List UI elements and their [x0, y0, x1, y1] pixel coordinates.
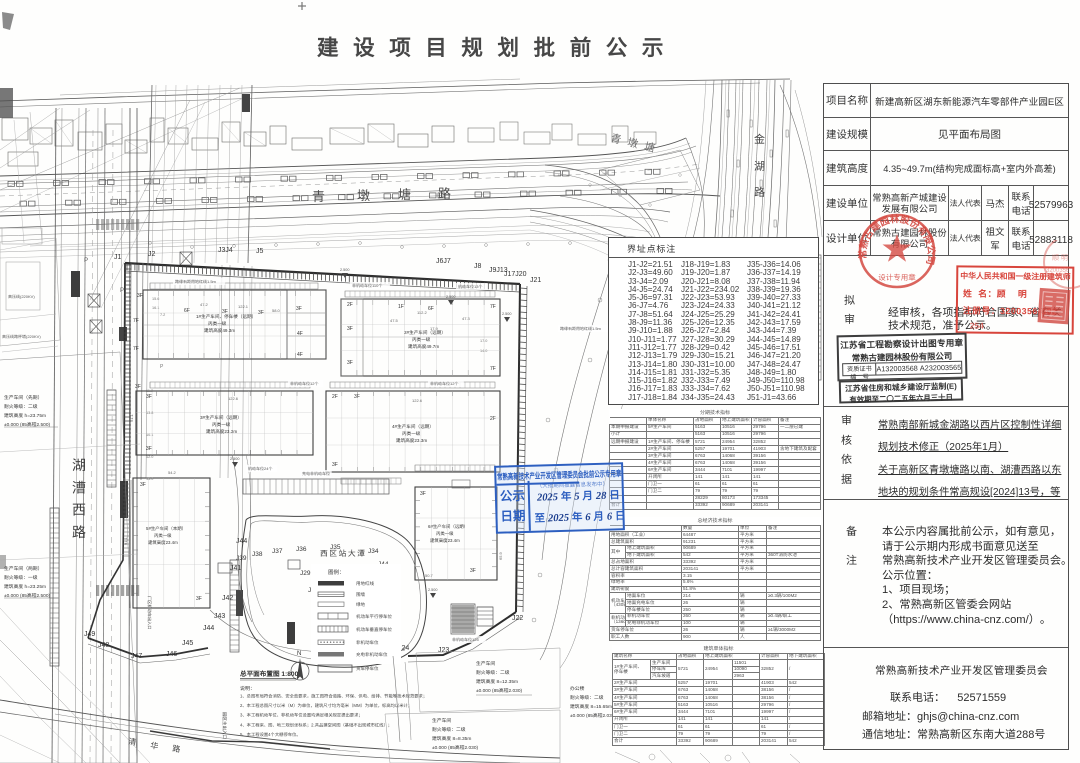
- svg-text:J43: J43: [214, 611, 225, 621]
- svg-text:17.0: 17.0: [480, 339, 487, 344]
- svg-text:3F: 3F: [140, 481, 146, 488]
- svg-text:非机动车位125: 非机动车位125: [452, 637, 479, 643]
- svg-text:J29: J29: [300, 567, 311, 577]
- svg-text:建筑高度 8=8.35m: 建筑高度 8=8.35m: [432, 735, 471, 742]
- svg-text:顺 明: 顺 明: [1052, 253, 1068, 263]
- svg-text:说明：: 说明：: [240, 685, 255, 692]
- svg-text:6#生产车间（远期）: 6#生产车间（远期）: [428, 524, 468, 530]
- svg-text:路缘石距用地红线1.5m: 路缘石距用地红线1.5m: [560, 326, 602, 332]
- svg-text:3F: 3F: [222, 308, 228, 315]
- svg-text:华: 华: [150, 740, 159, 752]
- svg-text:金: 金: [754, 131, 765, 147]
- svg-text:3F: 3F: [332, 461, 338, 468]
- svg-text:园区主出入口: 园区主出入口: [221, 712, 227, 739]
- svg-text:2.500: 2.500: [446, 295, 456, 300]
- svg-text:3F: 3F: [354, 393, 360, 400]
- svg-text:J3J4: J3J4: [218, 245, 233, 255]
- svg-text:建筑高度23.4m: 建筑高度23.4m: [148, 540, 178, 546]
- svg-text:建筑高度 8=12.35m: 建筑高度 8=12.35m: [476, 678, 518, 685]
- svg-text:清: 清: [128, 736, 137, 748]
- svg-text:15.0: 15.0: [146, 477, 153, 482]
- svg-text:建筑高度49.3m: 建筑高度49.3m: [204, 328, 235, 334]
- svg-text:建筑高度 h=23.75m: 建筑高度 h=23.75m: [4, 412, 46, 419]
- svg-text:耐火等级：二级: 耐火等级：二级: [476, 669, 510, 676]
- svg-text:J45: J45: [182, 638, 193, 648]
- svg-text:3F: 3F: [296, 305, 302, 312]
- svg-text:122.6: 122.6: [228, 396, 239, 402]
- svg-text:3F: 3F: [146, 445, 152, 452]
- svg-text:91.1: 91.1: [129, 413, 135, 422]
- svg-text:J38: J38: [252, 548, 263, 558]
- svg-text:J21: J21: [530, 275, 541, 285]
- svg-text:生产车间（先期）: 生产车间（先期）: [4, 394, 42, 401]
- svg-text:4F: 4F: [297, 351, 303, 358]
- svg-text:J2: J2: [148, 249, 156, 259]
- svg-text:J36: J36: [296, 543, 307, 553]
- svg-text:丙类一级: 丙类一级: [154, 533, 172, 539]
- svg-text:J23: J23: [438, 645, 449, 655]
- svg-text:3200356: 3200356: [1046, 265, 1070, 274]
- svg-text:货车停车位: 货车停车位: [356, 666, 379, 672]
- svg-text:建筑高度23.4m: 建筑高度23.4m: [430, 538, 460, 544]
- svg-text:丙类一级: 丙类一级: [436, 531, 454, 537]
- svg-text:J37: J37: [272, 545, 283, 555]
- svg-text:设计专用章: 设计专用章: [878, 272, 916, 283]
- svg-text:7.2: 7.2: [160, 313, 165, 318]
- svg-text:丙类一级: 丙类一级: [412, 337, 431, 343]
- svg-text:7F: 7F: [133, 317, 139, 324]
- svg-text:青: 青: [312, 186, 325, 205]
- svg-text:J44: J44: [203, 623, 214, 633]
- svg-text:5#生产车间（本期）: 5#生产车间（本期）: [146, 526, 186, 532]
- svg-text:6F: 6F: [428, 305, 434, 312]
- svg-text:高压线路杆塔(220KV): 高压线路杆塔(220KV): [2, 334, 41, 340]
- svg-text:西区站大潭: 西区站大潭: [320, 548, 366, 559]
- svg-text:西: 西: [72, 500, 86, 520]
- svg-text:丙类一级: 丙类一级: [402, 431, 421, 437]
- svg-text:J5: J5: [256, 246, 264, 256]
- svg-text:耐火等级：二级: 耐火等级：二级: [432, 726, 466, 733]
- svg-text:3#生产车间（远期）: 3#生产车间（远期）: [200, 415, 242, 421]
- svg-text:2、本工程总图尺寸以米（M）为单位，建筑尺寸均为毫米（MM）: 2、本工程总图尺寸以米（M）为单位，建筑尺寸均为毫米（MM）为单位，标高均以米计…: [240, 703, 412, 709]
- svg-text:丙类一级: 丙类一级: [212, 422, 231, 428]
- svg-text:3F: 3F: [146, 393, 152, 400]
- svg-text:非机动车位110个: 非机动车位110个: [352, 283, 382, 289]
- svg-text:N: N: [297, 648, 301, 657]
- svg-text:13.8: 13.8: [146, 411, 153, 416]
- svg-text:47.5: 47.5: [390, 318, 399, 324]
- svg-text:14.0: 14.0: [480, 349, 487, 354]
- svg-text:3、本工程机动车位、非机动车位设置均满足相关规定提出要求；: 3、本工程机动车位、非机动车位设置均满足相关规定提出要求；: [240, 713, 363, 719]
- svg-text:4、本工程采、图、地三规划坐标系；2.共品建空间图（基础不出: 4、本工程采、图、地三规划坐标系；2.共品建空间图（基础不出现城市红线）；: [240, 722, 392, 728]
- svg-text:3F: 3F: [470, 567, 476, 574]
- svg-text:建筑高度 8=15.65m: 建筑高度 8=15.65m: [570, 703, 612, 710]
- svg-text:122.6: 122.6: [412, 398, 423, 404]
- svg-text:丙类一级: 丙类一级: [208, 321, 227, 327]
- svg-text:J22: J22: [512, 613, 523, 623]
- svg-text:2.500: 2.500: [428, 588, 438, 593]
- svg-text:J1: J1: [114, 252, 122, 262]
- svg-text:厂区机动车出入口: 厂区机动车出入口: [146, 596, 152, 630]
- svg-text:路: 路: [754, 184, 765, 200]
- svg-text:2.500: 2.500: [230, 457, 240, 462]
- svg-text:生产车间（两期）: 生产车间（两期）: [4, 565, 42, 572]
- svg-text:墩: 墩: [357, 185, 370, 204]
- svg-text:生产车间: 生产车间: [432, 717, 451, 724]
- svg-text:4#生产车间（远期）: 4#生产车间（远期）: [392, 424, 434, 430]
- svg-text:充电非机动车位: 充电非机动车位: [302, 471, 330, 477]
- svg-text:1、总图布局符合消防、安全些要求，施工图符合道路、环保、供电: 1、总图布局符合消防、安全些要求，施工图符合道路、环保、供电、给排、节能等技术规…: [240, 694, 427, 700]
- svg-text:50.7: 50.7: [425, 573, 434, 579]
- svg-text:J46: J46: [166, 649, 177, 659]
- svg-text:2F: 2F: [347, 301, 353, 308]
- svg-text:图例：: 图例：: [328, 568, 345, 576]
- svg-text:2F: 2F: [490, 415, 496, 422]
- svg-text:112.2: 112.2: [417, 310, 427, 316]
- svg-text:3F: 3F: [196, 595, 202, 602]
- svg-text:7F: 7F: [490, 303, 496, 310]
- svg-text:7F: 7F: [133, 345, 139, 352]
- svg-text:充电非机动车位: 充电非机动车位: [356, 652, 388, 658]
- svg-text:湖: 湖: [72, 455, 86, 475]
- svg-text:2.500: 2.500: [340, 268, 350, 273]
- svg-text:机动车位13个: 机动车位13个: [458, 284, 482, 290]
- svg-text:路: 路: [172, 743, 181, 755]
- svg-text:非机动车位12个: 非机动车位12个: [290, 381, 318, 387]
- svg-text:生产车间: 生产车间: [476, 660, 495, 667]
- svg-text:非机动车位: 非机动车位: [356, 640, 379, 646]
- svg-text:1F: 1F: [398, 303, 404, 310]
- svg-text:65.9: 65.9: [498, 551, 504, 560]
- svg-text:2F: 2F: [332, 393, 338, 400]
- svg-text:建筑高度 h=23.25m: 建筑高度 h=23.25m: [4, 583, 46, 590]
- svg-text:47.2: 47.2: [200, 302, 209, 308]
- svg-text:±0.000 (85高程2.030): ±0.000 (85高程2.030): [476, 687, 523, 694]
- svg-text:建筑高度49.7m: 建筑高度49.7m: [408, 344, 439, 350]
- svg-text:3F: 3F: [137, 292, 143, 299]
- svg-text:机动车垂直停车位: 机动车垂直停车位: [356, 627, 392, 633]
- svg-text:机动车平行停车位: 机动车平行停车位: [356, 614, 392, 620]
- svg-text:用地红线: 用地红线: [356, 581, 374, 587]
- svg-text:J8: J8: [474, 261, 482, 271]
- svg-text:J48: J48: [98, 640, 109, 650]
- svg-text:J17J20: J17J20: [504, 269, 527, 279]
- svg-text:P: P: [84, 255, 88, 264]
- svg-text:建筑高度23.3m: 建筑高度23.3m: [396, 438, 427, 444]
- svg-text:P: P: [120, 285, 124, 294]
- svg-text:路: 路: [438, 183, 451, 202]
- svg-text:3F: 3F: [420, 490, 426, 497]
- svg-text:2.500: 2.500: [502, 312, 512, 317]
- svg-text:J6J7: J6J7: [436, 256, 451, 266]
- svg-text:绿地: 绿地: [356, 602, 365, 608]
- svg-text:围墙: 围墙: [356, 592, 365, 598]
- svg-text:耐火等级：二级: 耐火等级：二级: [570, 694, 604, 701]
- svg-text:J42: J42: [222, 593, 233, 603]
- svg-text:±0.000 (85高程2.030): ±0.000 (85高程2.030): [570, 712, 617, 719]
- svg-text:17.9: 17.9: [430, 326, 439, 332]
- svg-text:漕: 漕: [72, 477, 86, 497]
- svg-text:7F: 7F: [490, 365, 496, 372]
- svg-text:3F: 3F: [347, 325, 353, 332]
- svg-text:办公楼: 办公楼: [570, 685, 585, 692]
- svg-text:12.0: 12.0: [146, 455, 153, 460]
- svg-text:±0.000 (85高程2.030): ±0.000 (85高程2.030): [432, 744, 479, 751]
- svg-text:路: 路: [72, 522, 86, 542]
- svg-text:J49: J49: [84, 629, 95, 639]
- svg-text:54.2: 54.2: [168, 470, 177, 476]
- svg-text:2#生产车间（远期）: 2#生产车间（远期）: [404, 330, 446, 336]
- svg-text:耐火等级：二级: 耐火等级：二级: [4, 403, 38, 410]
- svg-text:机动车位24个: 机动车位24个: [248, 466, 272, 472]
- svg-text:J34: J34: [368, 545, 379, 555]
- svg-text:3F: 3F: [258, 309, 264, 316]
- svg-text:总平面布置图 1:800: 总平面布置图 1:800: [240, 668, 299, 678]
- svg-text:高压线(220KV): 高压线(220KV): [8, 294, 35, 300]
- svg-text:3F: 3F: [347, 359, 353, 366]
- svg-text:湖: 湖: [754, 158, 765, 174]
- svg-text:非机动车位12个: 非机动车位12个: [430, 381, 458, 387]
- svg-text:塘: 塘: [398, 184, 411, 203]
- svg-text:122.1: 122.1: [238, 304, 249, 310]
- svg-text:47.3: 47.3: [462, 316, 471, 322]
- svg-text:耐火等级：一级: 耐火等级：一级: [4, 574, 38, 581]
- svg-text:路缘石距用地红线1.5m: 路缘石距用地红线1.5m: [175, 279, 217, 285]
- svg-text:3F: 3F: [135, 383, 141, 390]
